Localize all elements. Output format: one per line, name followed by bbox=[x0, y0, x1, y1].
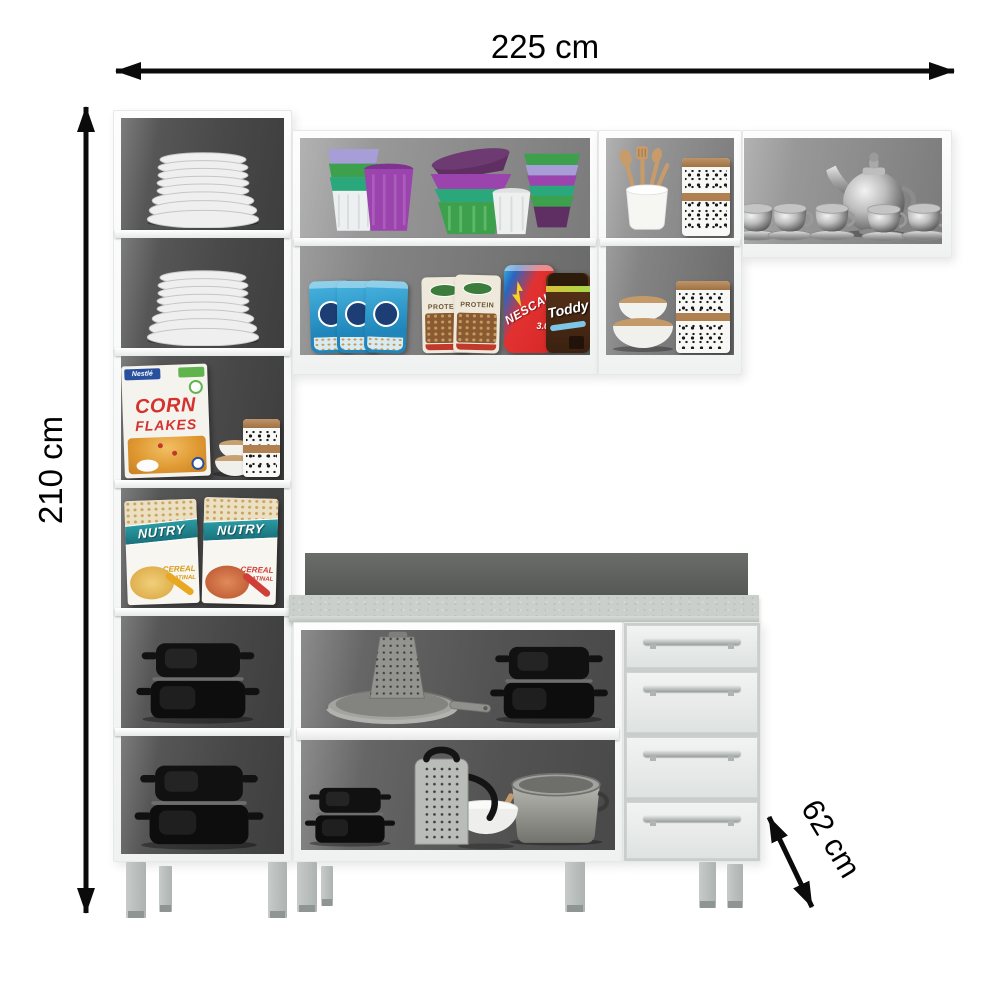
cabinet-leg bbox=[699, 862, 716, 908]
right-wall-shelf bbox=[742, 130, 952, 258]
upper-right-shelf-bowls bbox=[606, 246, 734, 355]
nutry-box-red: NUTRY CEREAL MATINAL bbox=[202, 497, 279, 605]
patterned-canister bbox=[243, 419, 280, 477]
column-shelf-pot-2 bbox=[121, 736, 284, 854]
black-roasting-pan-stack bbox=[301, 780, 399, 848]
drawer-unit bbox=[623, 622, 761, 862]
backsplash-panel bbox=[305, 553, 748, 597]
upper-right-wall-cabinet bbox=[598, 130, 742, 375]
kitchen-cabinet-product-image: Nestlé CORN FLAKES bbox=[0, 0, 1000, 1000]
cabinet-leg bbox=[321, 866, 333, 906]
drawer-4 bbox=[626, 802, 758, 859]
cereal-bowl-art bbox=[205, 565, 250, 599]
depth-dimension-arrow bbox=[769, 817, 812, 907]
toddy-jar: Toddy bbox=[546, 273, 590, 353]
tea-cup bbox=[766, 196, 814, 242]
column-shelf-pot-1 bbox=[121, 616, 284, 728]
shelf-board bbox=[297, 728, 619, 740]
column-shelf-cereal: Nestlé CORN FLAKES bbox=[121, 356, 284, 480]
tea-cup bbox=[900, 196, 942, 242]
shelf-board bbox=[294, 238, 596, 246]
column-shelf-cereal-boxes: NUTRY CEREAL MATINAL NUTRY CEREAL MATINA… bbox=[121, 488, 284, 608]
lidded-bowls-stack bbox=[608, 289, 678, 353]
width-dimension-label: 225 cm bbox=[491, 28, 599, 65]
drawer-2 bbox=[626, 672, 758, 733]
corn-flakes-green-tag bbox=[178, 367, 204, 378]
tea-cup bbox=[808, 196, 856, 242]
black-roasting-pan-stack bbox=[485, 636, 613, 726]
base-open-cabinet bbox=[293, 622, 623, 862]
tall-pantry-column: Nestlé CORN FLAKES bbox=[113, 110, 292, 862]
depth-dimension-label: 62 cm bbox=[794, 793, 867, 883]
base-shelf-top bbox=[301, 630, 615, 728]
cabinet-leg bbox=[268, 862, 287, 918]
shelf-board bbox=[115, 608, 290, 616]
plates-stack bbox=[128, 262, 278, 346]
cereal-bowl-art bbox=[130, 566, 175, 601]
shelf-board bbox=[115, 348, 290, 356]
corn-flakes-bowl-art bbox=[128, 436, 207, 475]
blue-pouch bbox=[364, 280, 408, 353]
cabinet-leg bbox=[297, 862, 317, 912]
patterned-canister bbox=[682, 158, 730, 236]
nestle-logo: Nestlé bbox=[124, 368, 160, 380]
tea-set-shelf bbox=[744, 138, 942, 244]
cabinet-leg bbox=[565, 862, 585, 912]
upper-middle-shelf-snacks: PROTEIN PROTEIN NESCAU 3.0 Toddy bbox=[300, 246, 590, 355]
cabinet-leg bbox=[159, 866, 172, 912]
protein-granola-pouch: PROTEIN bbox=[453, 274, 501, 353]
granite-countertop bbox=[289, 595, 759, 622]
patterned-canister bbox=[676, 281, 730, 353]
drawer-handle bbox=[643, 815, 741, 822]
drawer-handle bbox=[643, 685, 741, 692]
plastic-cups-stack-right bbox=[516, 142, 588, 236]
upper-right-shelf-utensils bbox=[606, 138, 734, 238]
drawer-3 bbox=[626, 737, 758, 798]
protein-label: PROTEIN bbox=[454, 301, 500, 309]
black-roasting-pan-stack bbox=[129, 755, 269, 851]
column-shelf-plates-1 bbox=[121, 118, 284, 230]
column-shelf-plates-2 bbox=[121, 238, 284, 348]
upper-middle-shelf-cups bbox=[300, 138, 590, 238]
cabinet-leg bbox=[126, 862, 146, 918]
nutry-logo: NUTRY bbox=[202, 518, 279, 541]
toddy-label: Toddy bbox=[545, 297, 590, 322]
black-roasting-pan-stack bbox=[131, 633, 265, 725]
drawer-1 bbox=[626, 625, 758, 668]
shelf-board bbox=[115, 728, 290, 736]
nutry-box-yellow: NUTRY CEREAL MATINAL bbox=[124, 499, 200, 605]
upper-middle-wall-cabinet: PROTEIN PROTEIN NESCAU 3.0 Toddy bbox=[292, 130, 598, 375]
frying-pan-with-grater bbox=[305, 630, 501, 728]
shelf-board bbox=[115, 480, 290, 488]
shelf-board bbox=[600, 238, 740, 246]
height-dimension-label: 210 cm bbox=[32, 416, 69, 524]
corn-flakes-title-2: FLAKES bbox=[123, 416, 210, 435]
corn-flakes-check-seal bbox=[189, 380, 203, 394]
plates-stack bbox=[128, 144, 278, 228]
drawer-handle bbox=[643, 638, 741, 645]
utensil-crock bbox=[610, 142, 684, 236]
cabinet-leg bbox=[727, 864, 743, 908]
modern-grater bbox=[393, 744, 509, 848]
blue-snack-pouches bbox=[310, 277, 410, 353]
shelf-board bbox=[115, 230, 290, 238]
corn-flakes-box: Nestlé CORN FLAKES bbox=[121, 364, 211, 479]
drawer-handle bbox=[643, 750, 741, 757]
base-shelf-bottom bbox=[301, 740, 615, 850]
